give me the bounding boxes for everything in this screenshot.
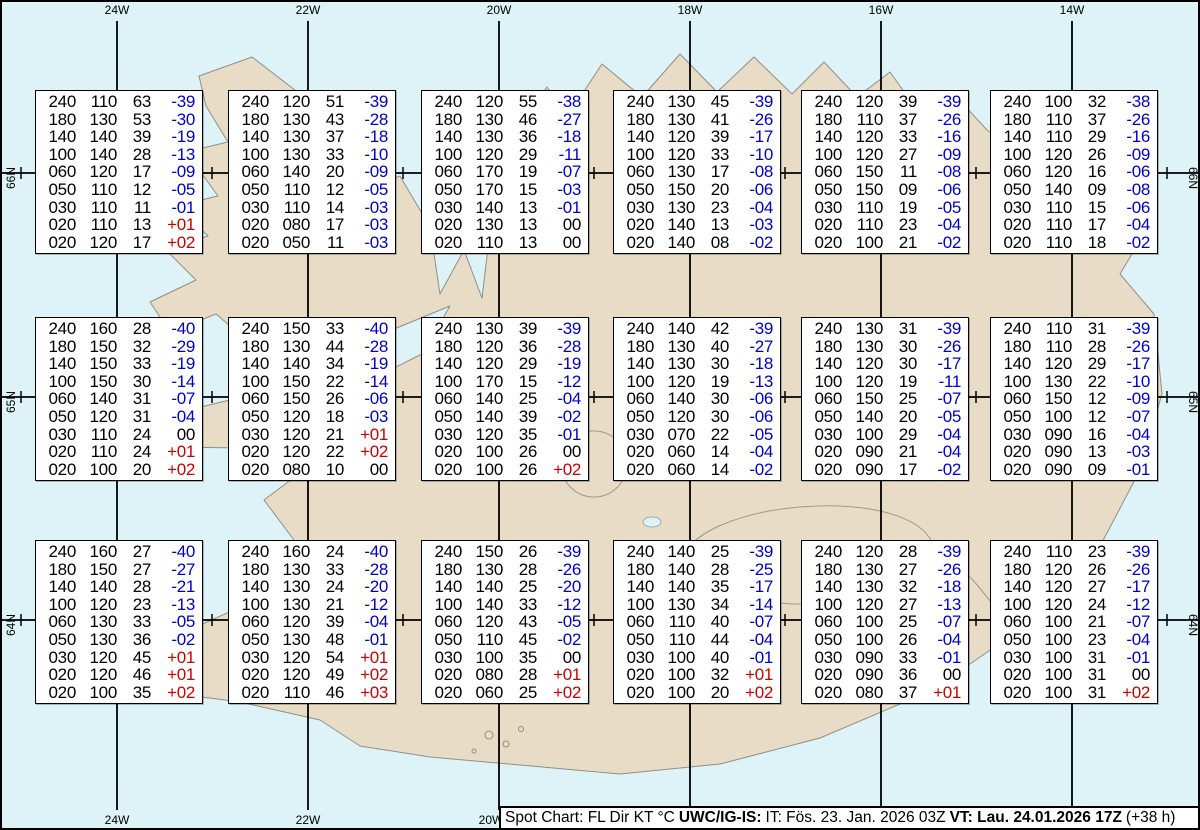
temp-value: -27 [155, 561, 195, 579]
temp-value: +03 [348, 684, 388, 702]
spot-row: 02008017-03 [236, 216, 388, 234]
spot-row: 24012039-39 [809, 93, 961, 111]
kt-value: 32 [1076, 93, 1106, 111]
kt-value: 17 [121, 234, 151, 252]
kt-value: 23 [1076, 631, 1106, 649]
fl-value: 060 [429, 390, 462, 408]
fl-value: 060 [236, 163, 269, 181]
fl-value: 240 [809, 543, 842, 561]
dir-value: 110 [1035, 543, 1072, 561]
temp-value: +02 [155, 461, 195, 479]
kt-value: 33 [507, 596, 537, 614]
spot-row: 14015033-19 [43, 355, 195, 373]
fl-value: 100 [998, 596, 1031, 614]
dir-value: 100 [466, 649, 503, 667]
kt-value: 35 [121, 684, 151, 702]
kt-value: 36 [507, 128, 537, 146]
spot-row: 02014013-03 [621, 216, 773, 234]
temp-value: -07 [155, 390, 195, 408]
fl-value: 140 [809, 128, 842, 146]
spot-row: 18011037-26 [998, 111, 1150, 129]
spot-row: 02014008-02 [621, 234, 773, 252]
kt-value: 19 [887, 199, 917, 217]
fl-value: 240 [998, 543, 1031, 561]
kt-value: 37 [1076, 111, 1106, 129]
kt-value: 09 [1076, 461, 1106, 479]
fl-value: 020 [621, 666, 654, 684]
spot-row: 10013022-10 [998, 373, 1150, 391]
fl-value: 020 [43, 684, 76, 702]
spot-row: 18013028-26 [429, 561, 581, 579]
dir-value: 120 [466, 355, 503, 373]
kt-value: 12 [1076, 390, 1106, 408]
kt-value: 29 [507, 146, 537, 164]
dir-value: 120 [1035, 355, 1072, 373]
spot-row: 18014028-25 [621, 561, 773, 579]
fl-value: 140 [429, 355, 462, 373]
dir-value: 110 [846, 111, 883, 129]
spot-row: 06014020-09 [236, 163, 388, 181]
dir-value: 130 [846, 338, 883, 356]
temp-value: -07 [921, 613, 961, 631]
temp-value: -39 [541, 543, 581, 561]
spot-row: 24014042-39 [621, 320, 773, 338]
dir-value: 120 [466, 146, 503, 164]
kt-value: 42 [699, 320, 729, 338]
kt-value: 13 [507, 216, 537, 234]
fl-value: 060 [43, 163, 76, 181]
spot-data-box: 24011063-3918013053-3014014039-191001402… [35, 90, 203, 254]
spot-row: 02010026+02 [429, 461, 581, 479]
fl-value: 060 [236, 613, 269, 631]
fl-value: 060 [621, 163, 654, 181]
kt-value: 11 [314, 234, 344, 252]
fl-value: 020 [236, 684, 269, 702]
spot-row: 18013030-26 [809, 338, 961, 356]
spot-row: 03011011-01 [43, 199, 195, 217]
dir-value: 120 [80, 234, 117, 252]
dir-value: 160 [273, 543, 310, 561]
temp-value: -07 [1110, 613, 1150, 631]
fl-value: 050 [429, 408, 462, 426]
temp-value: -08 [921, 163, 961, 181]
spot-row: 10012027-09 [809, 146, 961, 164]
kt-value: 26 [1076, 146, 1106, 164]
temp-value: -21 [155, 578, 195, 596]
kt-value: 23 [699, 199, 729, 217]
dir-value: 090 [1035, 443, 1072, 461]
temp-value: -03 [541, 181, 581, 199]
dir-value: 110 [80, 93, 117, 111]
spot-row: 06012016-06 [998, 163, 1150, 181]
fl-value: 060 [621, 390, 654, 408]
spot-row: 0201002600 [429, 443, 581, 461]
kt-value: 33 [314, 561, 344, 579]
kt-value: 26 [507, 461, 537, 479]
spot-row: 10014028-13 [43, 146, 195, 164]
kt-value: 36 [507, 338, 537, 356]
kt-value: 20 [121, 461, 151, 479]
temp-value: -01 [1110, 649, 1150, 667]
spot-row: 14013037-18 [236, 128, 388, 146]
kt-value: 27 [121, 561, 151, 579]
dir-value: 090 [1035, 426, 1072, 444]
spot-row: 14012033-16 [809, 128, 961, 146]
dir-value: 130 [1035, 373, 1072, 391]
temp-value: -06 [921, 181, 961, 199]
spot-row: 06015012-09 [998, 390, 1150, 408]
fl-value: 240 [998, 320, 1031, 338]
temp-value: +01 [155, 443, 195, 461]
kt-value: 14 [314, 199, 344, 217]
spot-row: 24015033-40 [236, 320, 388, 338]
temp-value: -39 [541, 320, 581, 338]
spot-row: 02010020+02 [43, 461, 195, 479]
dir-value: 100 [846, 234, 883, 252]
temp-value: -14 [155, 373, 195, 391]
temp-value: -40 [155, 543, 195, 561]
dir-value: 130 [273, 338, 310, 356]
temp-value: -29 [155, 338, 195, 356]
temp-value: -11 [541, 146, 581, 164]
spot-row: 14014025-20 [429, 578, 581, 596]
kt-value: 33 [887, 649, 917, 667]
kt-value: 28 [887, 543, 917, 561]
spot-row: 02006025+02 [429, 684, 581, 702]
spot-row: 18013033-28 [236, 561, 388, 579]
fl-value: 050 [43, 631, 76, 649]
fl-value: 100 [621, 373, 654, 391]
kt-value: 20 [887, 408, 917, 426]
temp-value: -39 [733, 93, 773, 111]
dir-value: 150 [846, 181, 883, 199]
temp-value: -39 [921, 543, 961, 561]
fl-value: 240 [429, 93, 462, 111]
kt-value: 39 [507, 408, 537, 426]
fl-value: 240 [809, 320, 842, 338]
spot-data-box: 24016028-4018015032-2914015033-191001503… [35, 317, 203, 481]
dir-value: 110 [846, 199, 883, 217]
fl-value: 030 [809, 199, 842, 217]
spot-row: 24014025-39 [621, 543, 773, 561]
fl-value: 030 [998, 649, 1031, 667]
dir-value: 140 [466, 199, 503, 217]
dir-value: 140 [658, 320, 695, 338]
spot-row: 02012017+02 [43, 234, 195, 252]
spot-row: 06013017-08 [621, 163, 773, 181]
kt-value: 12 [1076, 408, 1106, 426]
dir-value: 140 [273, 163, 310, 181]
fl-value: 180 [809, 111, 842, 129]
fl-value: 020 [998, 234, 1031, 252]
kt-value: 25 [507, 684, 537, 702]
dir-value: 160 [80, 320, 117, 338]
kt-value: 35 [699, 578, 729, 596]
spot-data-box: 24013039-3918012036-2814012029-191001701… [421, 317, 589, 481]
spot-data-box: 24016024-4018013033-2814013024-201001302… [228, 540, 396, 704]
fl-value: 100 [43, 596, 76, 614]
temp-value: -04 [921, 216, 961, 234]
temp-value: -28 [348, 111, 388, 129]
spot-row: 02008037+01 [809, 684, 961, 702]
temp-value: 00 [155, 426, 195, 444]
dir-value: 110 [80, 199, 117, 217]
dir-value: 120 [658, 146, 695, 164]
dir-value: 110 [1035, 338, 1072, 356]
temp-value: -39 [1110, 543, 1150, 561]
dir-value: 120 [466, 426, 503, 444]
kt-value: 27 [887, 596, 917, 614]
temp-value: +02 [541, 461, 581, 479]
dir-value: 080 [846, 684, 883, 702]
dir-value: 110 [80, 181, 117, 199]
kt-value: 27 [887, 561, 917, 579]
fl-value: 030 [809, 649, 842, 667]
fl-value: 060 [998, 613, 1031, 631]
fl-value: 180 [621, 111, 654, 129]
kt-value: 27 [887, 146, 917, 164]
fl-value: 020 [621, 684, 654, 702]
fl-value: 180 [43, 111, 76, 129]
kt-value: 26 [507, 543, 537, 561]
spot-row: 10012019-13 [621, 373, 773, 391]
kt-value: 28 [699, 561, 729, 579]
dir-value: 100 [466, 461, 503, 479]
temp-value: -26 [921, 338, 961, 356]
temp-value: -02 [1110, 234, 1150, 252]
temp-value: -10 [733, 146, 773, 164]
kt-value: 21 [314, 596, 344, 614]
fl-value: 030 [43, 426, 76, 444]
valid-time: VT: Lau. 24.01.2026 17Z [950, 809, 1122, 827]
temp-value: +01 [155, 216, 195, 234]
dir-value: 140 [846, 408, 883, 426]
kt-value: 31 [1076, 320, 1106, 338]
temp-value: -04 [921, 443, 961, 461]
fl-value: 100 [998, 373, 1031, 391]
kt-value: 33 [699, 146, 729, 164]
dir-value: 130 [273, 146, 310, 164]
spot-row: 10012033-10 [621, 146, 773, 164]
dir-value: 140 [658, 561, 695, 579]
spot-row: 03010029-04 [809, 426, 961, 444]
fl-value: 100 [809, 146, 842, 164]
fl-value: 030 [809, 426, 842, 444]
kt-value: 13 [699, 216, 729, 234]
spot-data-box: 24011031-3918011028-2614012029-171001302… [990, 317, 1158, 481]
fl-value: 180 [236, 561, 269, 579]
spot-row: 14014034-19 [236, 355, 388, 373]
fl-value: 060 [43, 613, 76, 631]
spot-row: 24011063-39 [43, 93, 195, 111]
kt-value: 11 [121, 199, 151, 217]
status-bar: Spot Chart: FL Dir KT °C UWC/IG-IS: IT: … [499, 806, 1198, 828]
fl-value: 050 [236, 181, 269, 199]
kt-value: 13 [507, 199, 537, 217]
dir-value: 120 [466, 338, 503, 356]
kt-value: 29 [887, 426, 917, 444]
fl-value: 020 [236, 234, 269, 252]
fl-value: 030 [998, 199, 1031, 217]
fl-value: 140 [998, 128, 1031, 146]
temp-value: -04 [733, 631, 773, 649]
dir-value: 170 [466, 181, 503, 199]
fl-value: 030 [429, 649, 462, 667]
dir-value: 120 [846, 355, 883, 373]
fl-value: 020 [809, 216, 842, 234]
dir-value: 110 [1035, 111, 1072, 129]
fl-value: 050 [429, 631, 462, 649]
dir-value: 120 [1035, 163, 1072, 181]
fl-value: 180 [236, 338, 269, 356]
temp-value: -05 [155, 613, 195, 631]
temp-value: -13 [921, 596, 961, 614]
kt-value: 24 [1076, 596, 1106, 614]
kt-value: 20 [314, 163, 344, 181]
temp-value: -09 [921, 146, 961, 164]
dir-value: 090 [846, 443, 883, 461]
fl-value: 240 [43, 93, 76, 111]
dir-value: 100 [846, 426, 883, 444]
spot-row: 02009017-02 [809, 461, 961, 479]
temp-value: -14 [348, 373, 388, 391]
dir-value: 130 [846, 578, 883, 596]
kt-value: 39 [314, 613, 344, 631]
temp-value: -26 [1110, 338, 1150, 356]
kt-value: 15 [507, 181, 537, 199]
kt-value: 53 [121, 111, 151, 129]
spot-row: 14014039-19 [43, 128, 195, 146]
spot-row: 02011046+03 [236, 684, 388, 702]
temp-value: -09 [155, 163, 195, 181]
temp-value: -02 [541, 408, 581, 426]
dir-value: 120 [273, 426, 310, 444]
fl-value: 030 [998, 426, 1031, 444]
dir-value: 110 [1035, 320, 1072, 338]
fl-value: 180 [429, 111, 462, 129]
fl-value: 100 [429, 146, 462, 164]
fl-value: 100 [809, 596, 842, 614]
fl-value: 020 [809, 684, 842, 702]
kt-value: 36 [121, 631, 151, 649]
temp-value: 00 [541, 216, 581, 234]
dir-value: 100 [1035, 613, 1072, 631]
temp-value: -30 [155, 111, 195, 129]
dir-value: 080 [273, 461, 310, 479]
temp-value: 00 [1110, 666, 1150, 684]
fl-value: 140 [236, 355, 269, 373]
dir-value: 120 [273, 613, 310, 631]
spot-row: 06015025-07 [809, 390, 961, 408]
fl-value: 140 [621, 355, 654, 373]
kt-value: 17 [314, 216, 344, 234]
spot-row: 02012022+02 [236, 443, 388, 461]
kt-value: 21 [887, 234, 917, 252]
kt-value: 22 [314, 443, 344, 461]
dir-value: 110 [466, 234, 503, 252]
kt-value: 46 [121, 666, 151, 684]
spot-row: 02010031+02 [998, 684, 1150, 702]
fl-value: 140 [236, 128, 269, 146]
spot-chart: 24W 22W 20W 18W 16W 14W 24W 22W 20W 66N … [0, 0, 1200, 830]
temp-value: +01 [921, 684, 961, 702]
kt-value: 23 [121, 596, 151, 614]
temp-value: -09 [348, 163, 388, 181]
temp-value: +01 [155, 649, 195, 667]
kt-value: 33 [121, 355, 151, 373]
kt-value: 44 [314, 338, 344, 356]
dir-value: 110 [80, 426, 117, 444]
fl-value: 240 [809, 93, 842, 111]
temp-value: -18 [921, 578, 961, 596]
kt-value: 26 [887, 631, 917, 649]
fl-value: 030 [236, 649, 269, 667]
dir-value: 110 [80, 216, 117, 234]
spot-row: 06012039-04 [236, 613, 388, 631]
kt-value: 34 [314, 355, 344, 373]
fl-value: 180 [621, 338, 654, 356]
temp-value: -03 [348, 216, 388, 234]
spot-row: 03011014-03 [236, 199, 388, 217]
spot-data-box: 24012028-3918013027-2614013032-181001202… [801, 540, 969, 704]
temp-value: -06 [348, 390, 388, 408]
spot-row: 02009009-01 [998, 461, 1150, 479]
kt-value: 37 [887, 111, 917, 129]
kt-value: 30 [121, 373, 151, 391]
longitude-label: 14W [1060, 3, 1085, 17]
spot-row: 18011028-26 [998, 338, 1150, 356]
temp-value: -06 [733, 390, 773, 408]
kt-value: 45 [121, 649, 151, 667]
spot-row: 06014025-04 [429, 390, 581, 408]
spot-row: 10012019-11 [809, 373, 961, 391]
spot-row: 10017015-12 [429, 373, 581, 391]
spot-row: 18012036-28 [429, 338, 581, 356]
dir-value: 100 [658, 684, 695, 702]
spot-row: 02010021-02 [809, 234, 961, 252]
temp-value: -39 [733, 543, 773, 561]
kt-value: 33 [121, 613, 151, 631]
spot-row: 06017019-07 [429, 163, 581, 181]
dir-value: 120 [80, 649, 117, 667]
fl-value: 020 [998, 461, 1031, 479]
spot-row: 14012039-17 [621, 128, 773, 146]
kt-value: 17 [1076, 216, 1106, 234]
kt-value: 54 [314, 649, 344, 667]
fl-value: 060 [809, 163, 842, 181]
dir-value: 080 [466, 666, 503, 684]
dir-value: 150 [80, 338, 117, 356]
dir-value: 100 [466, 443, 503, 461]
spot-row: 18015027-27 [43, 561, 195, 579]
spot-row: 06014030-06 [621, 390, 773, 408]
temp-value: -05 [155, 181, 195, 199]
fl-value: 100 [621, 596, 654, 614]
spot-row: 02011013+01 [43, 216, 195, 234]
dir-value: 100 [1035, 684, 1072, 702]
kt-value: 24 [121, 426, 151, 444]
dir-value: 070 [658, 426, 695, 444]
latitude-label: 65N [1187, 391, 1199, 413]
kt-value: 45 [507, 631, 537, 649]
temp-value: +01 [733, 666, 773, 684]
spot-row: 03009033-01 [809, 649, 961, 667]
temp-value: -10 [1110, 373, 1150, 391]
kt-value: 49 [314, 666, 344, 684]
temp-value: -13 [155, 596, 195, 614]
spot-row: 03012054+01 [236, 649, 388, 667]
temp-value: -04 [921, 631, 961, 649]
